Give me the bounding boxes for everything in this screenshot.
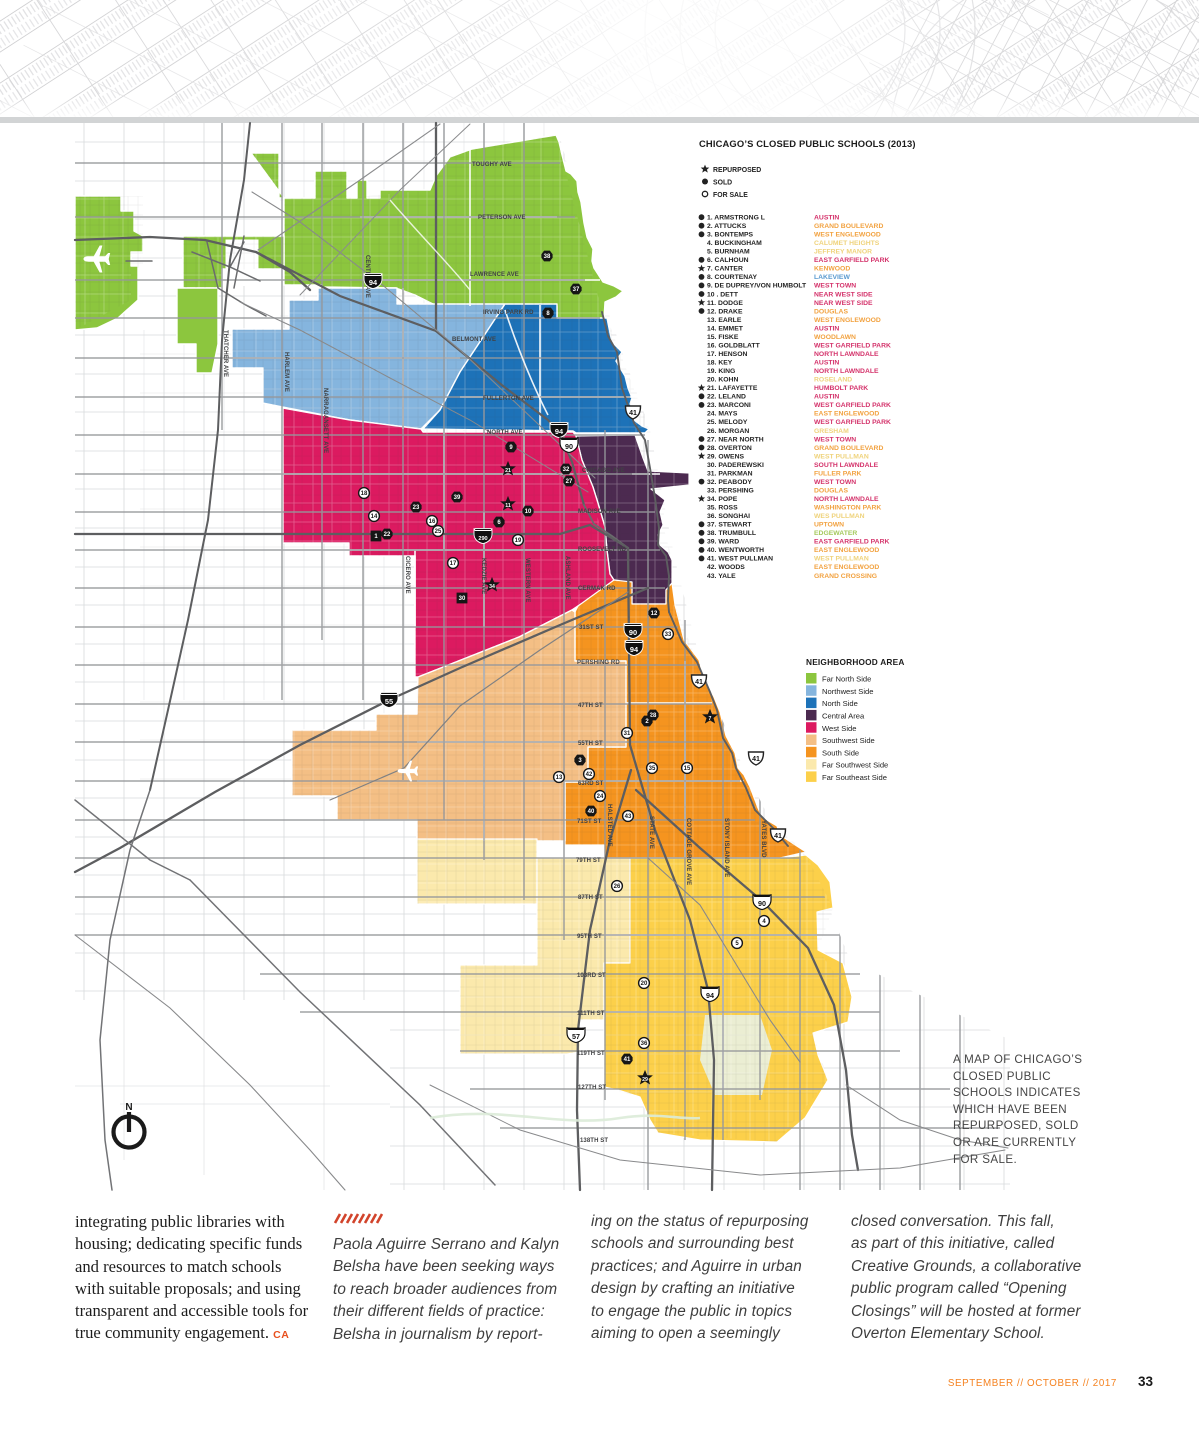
- svg-text:26: 26: [614, 884, 621, 890]
- svg-text:CHICAGO AVE: CHICAGO AVE: [582, 468, 625, 474]
- svg-text:HALSTED AVE: HALSTED AVE: [606, 804, 612, 847]
- svg-text:N: N: [125, 1102, 132, 1113]
- svg-text:9. DE DUPREY/VON HUMBOLT: 9. DE DUPREY/VON HUMBOLT: [707, 283, 807, 290]
- svg-text:GRAND BOULEVARD: GRAND BOULEVARD: [814, 223, 883, 230]
- svg-text:138TH ST: 138TH ST: [580, 1138, 608, 1144]
- svg-text:37. STEWART: 37. STEWART: [707, 522, 752, 529]
- svg-text:94: 94: [369, 278, 378, 287]
- svg-text:WEST GARFIELD PARK: WEST GARFIELD PARK: [814, 419, 891, 426]
- svg-text:55TH ST: 55TH ST: [578, 741, 603, 747]
- svg-text:Far Southeast Side: Far Southeast Side: [822, 773, 887, 782]
- svg-text:94: 94: [555, 427, 564, 436]
- svg-text:16. GOLDBLATT: 16. GOLDBLATT: [707, 342, 761, 349]
- svg-text:ROSELAND: ROSELAND: [814, 377, 852, 384]
- svg-text:ROOSEVELT RD: ROOSEVELT RD: [578, 547, 627, 553]
- svg-text:STATE AVE: STATE AVE: [648, 816, 654, 849]
- svg-text:14: 14: [371, 514, 378, 520]
- svg-text:WEST PULLMAN: WEST PULLMAN: [814, 453, 869, 460]
- svg-text:KENWOOD: KENWOOD: [814, 266, 850, 273]
- svg-text:REPURPOSED: REPURPOSED: [713, 167, 761, 174]
- svg-text:EDGEWATER: EDGEWATER: [814, 530, 857, 537]
- svg-text:14. EMMET: 14. EMMET: [707, 325, 744, 332]
- svg-text:Far North Side: Far North Side: [822, 675, 871, 684]
- svg-text:111TH ST: 111TH ST: [577, 1011, 605, 1017]
- svg-text:NEAR WEST SIDE: NEAR WEST SIDE: [814, 300, 873, 307]
- svg-text:41: 41: [774, 833, 782, 840]
- svg-text:NARRAGANSETT AVE: NARRAGANSETT AVE: [322, 388, 328, 453]
- svg-text:10 . DETT: 10 . DETT: [707, 291, 739, 298]
- svg-text:DOUGLAS: DOUGLAS: [814, 308, 848, 315]
- svg-text:FOR SALE: FOR SALE: [713, 192, 748, 199]
- svg-text:WEST PULLMAN: WEST PULLMAN: [814, 556, 869, 563]
- svg-text:15. FISKE: 15. FISKE: [707, 334, 739, 341]
- svg-text:13. EARLE: 13. EARLE: [707, 317, 742, 324]
- svg-text:AUSTIN: AUSTIN: [814, 394, 839, 401]
- svg-text:32: 32: [563, 467, 570, 473]
- svg-text:11: 11: [505, 503, 511, 509]
- svg-text:35. ROSS: 35. ROSS: [707, 505, 738, 512]
- svg-text:WEST TOWN: WEST TOWN: [814, 479, 856, 486]
- svg-text:West Side: West Side: [822, 724, 856, 733]
- svg-text:38: 38: [544, 254, 551, 260]
- svg-text:103RD ST: 103RD ST: [577, 973, 606, 979]
- svg-text:LAKEVIEW: LAKEVIEW: [814, 274, 850, 281]
- svg-text:29: 29: [642, 1077, 648, 1083]
- svg-text:NEAR WEST SIDE: NEAR WEST SIDE: [814, 291, 873, 298]
- svg-text:EAST GARFIELD PARK: EAST GARFIELD PARK: [814, 257, 889, 264]
- svg-text:290: 290: [478, 536, 487, 542]
- svg-text:23. MARCONI: 23. MARCONI: [707, 402, 751, 409]
- svg-text:CERMAK RD: CERMAK RD: [578, 586, 616, 592]
- svg-text:SCHOOLS INDICATES: SCHOOLS INDICATES: [953, 1086, 1081, 1099]
- svg-text:Far Southwest Side: Far Southwest Side: [822, 761, 888, 770]
- svg-text:18. KEY: 18. KEY: [707, 360, 733, 367]
- svg-text:31: 31: [624, 731, 631, 737]
- svg-text:ASHLAND AVE: ASHLAND AVE: [564, 556, 570, 600]
- svg-text:WESTERN AVE: WESTERN AVE: [524, 558, 530, 602]
- svg-text:13: 13: [556, 775, 563, 781]
- svg-text:SOUTH LAWNDALE: SOUTH LAWNDALE: [814, 462, 879, 469]
- svg-text:119TH ST: 119TH ST: [577, 1051, 605, 1057]
- svg-text:39: 39: [454, 495, 461, 501]
- svg-text:28. OVERTON: 28. OVERTON: [707, 445, 752, 452]
- svg-text:MADISON AVE: MADISON AVE: [578, 509, 621, 515]
- svg-text:30. PADEREWSKI: 30. PADEREWSKI: [707, 462, 764, 469]
- svg-text:33: 33: [665, 632, 672, 638]
- svg-text:JEFFREY MANOR: JEFFREY MANOR: [814, 249, 872, 256]
- svg-text:UPTOWN: UPTOWN: [814, 522, 844, 529]
- svg-text:39. WARD: 39. WARD: [707, 539, 739, 546]
- svg-text:WES PULLMAN: WES PULLMAN: [814, 513, 865, 520]
- svg-text:25: 25: [435, 529, 442, 535]
- svg-text:20. KOHN: 20. KOHN: [707, 377, 738, 384]
- svg-text:CICERO AVE: CICERO AVE: [404, 556, 410, 594]
- svg-text:IRVING PARK RD: IRVING PARK RD: [483, 310, 534, 316]
- svg-text:19. KING: 19. KING: [707, 368, 735, 375]
- svg-text:BELMONT AVE: BELMONT AVE: [452, 337, 496, 343]
- svg-text:36. SONGHAI: 36. SONGHAI: [707, 513, 750, 520]
- svg-text:Central Area: Central Area: [822, 712, 865, 721]
- svg-text:FULLER PARK: FULLER PARK: [814, 470, 862, 477]
- svg-text:63RD ST: 63RD ST: [578, 781, 604, 787]
- svg-text:34. POPE: 34. POPE: [707, 496, 738, 503]
- svg-text:PETERSON AVE: PETERSON AVE: [478, 215, 526, 221]
- svg-text:95TH ST: 95TH ST: [577, 934, 602, 940]
- svg-text:19: 19: [515, 538, 522, 544]
- svg-text:Northwest Side: Northwest Side: [822, 687, 874, 696]
- svg-text:WEST GARFIELD PARK: WEST GARFIELD PARK: [814, 402, 891, 409]
- svg-text:8. COURTENAY: 8. COURTENAY: [707, 274, 757, 281]
- svg-text:NORTH AVE: NORTH AVE: [487, 430, 523, 436]
- svg-text:87TH ST: 87TH ST: [578, 895, 603, 901]
- svg-text:OR ARE CURRENTLY: OR ARE CURRENTLY: [953, 1136, 1076, 1149]
- svg-text:FOR SALE.: FOR SALE.: [953, 1153, 1017, 1166]
- svg-text:94: 94: [706, 991, 714, 1000]
- svg-text:41: 41: [624, 1057, 631, 1063]
- svg-text:20: 20: [641, 981, 648, 987]
- svg-text:33. PERSHING: 33. PERSHING: [707, 488, 754, 495]
- svg-text:KEDZIE AVE: KEDZIE AVE: [480, 558, 486, 594]
- svg-text:2. ATTUCKS: 2. ATTUCKS: [707, 223, 747, 230]
- svg-text:79TH ST: 79TH ST: [576, 858, 601, 864]
- svg-text:EAST GARFIELD PARK: EAST GARFIELD PARK: [814, 539, 889, 546]
- svg-text:25. MELODY: 25. MELODY: [707, 419, 748, 426]
- svg-text:90: 90: [565, 442, 573, 451]
- svg-text:32. PEABODY: 32. PEABODY: [707, 479, 752, 486]
- svg-text:34: 34: [489, 584, 495, 590]
- svg-text:11. DODGE: 11. DODGE: [707, 300, 743, 307]
- svg-text:16: 16: [429, 519, 436, 525]
- svg-text:21. LAFAYETTE: 21. LAFAYETTE: [707, 385, 758, 392]
- svg-text:31. PARKMAN: 31. PARKMAN: [707, 470, 753, 477]
- svg-text:36: 36: [641, 1041, 648, 1047]
- svg-text:7: 7: [709, 716, 712, 722]
- svg-text:22. LELAND: 22. LELAND: [707, 394, 746, 401]
- svg-text:North Side: North Side: [822, 699, 858, 708]
- svg-text:SOLD: SOLD: [713, 180, 732, 187]
- svg-text:71ST ST: 71ST ST: [577, 819, 602, 825]
- svg-text:94: 94: [630, 645, 639, 654]
- svg-text:COTTAGE GROVE AVE: COTTAGE GROVE AVE: [685, 818, 691, 885]
- svg-text:HARLEM AVE: HARLEM AVE: [283, 352, 289, 392]
- svg-text:55: 55: [385, 697, 393, 706]
- svg-text:GRAND CROSSING: GRAND CROSSING: [814, 573, 877, 580]
- svg-text:3. BONTEMPS: 3. BONTEMPS: [707, 232, 754, 239]
- svg-text:CHICAGO’S CLOSED PUBLIC SCHOOL: CHICAGO’S CLOSED PUBLIC SCHOOLS (2013): [699, 138, 916, 149]
- svg-text:CLOSED PUBLIC: CLOSED PUBLIC: [953, 1070, 1051, 1083]
- svg-text:31ST ST: 31ST ST: [579, 625, 604, 631]
- svg-text:42: 42: [586, 772, 593, 778]
- svg-text:STONY ISLAND AVE: STONY ISLAND AVE: [723, 818, 729, 877]
- svg-text:WEST TOWN: WEST TOWN: [814, 283, 856, 290]
- svg-text:40. WENTWORTH: 40. WENTWORTH: [707, 547, 764, 554]
- svg-text:30: 30: [459, 596, 466, 602]
- svg-text:WEST GARFIELD PARK: WEST GARFIELD PARK: [814, 342, 891, 349]
- svg-text:1. ARMSTRONG L: 1. ARMSTRONG L: [707, 215, 765, 222]
- svg-text:40: 40: [588, 809, 595, 815]
- svg-text:South Side: South Side: [822, 748, 859, 757]
- svg-text:18: 18: [361, 491, 368, 497]
- svg-text:35: 35: [649, 766, 656, 772]
- svg-text:29. OWENS: 29. OWENS: [707, 453, 744, 460]
- svg-text:90: 90: [758, 899, 766, 908]
- svg-text:43. YALE: 43. YALE: [707, 573, 736, 580]
- svg-text:27. NEAR NORTH: 27. NEAR NORTH: [707, 436, 764, 443]
- svg-text:12. DRAKE: 12. DRAKE: [707, 308, 743, 315]
- svg-text:5. BURNHAM: 5. BURNHAM: [707, 249, 750, 256]
- svg-text:WEST ENGLEWOOD: WEST ENGLEWOOD: [814, 232, 881, 239]
- svg-text:90: 90: [629, 628, 637, 637]
- svg-text:EAST ENGLEWOOD: EAST ENGLEWOOD: [814, 564, 879, 571]
- svg-text:26. MORGAN: 26. MORGAN: [707, 428, 749, 435]
- svg-text:24: 24: [597, 794, 604, 800]
- svg-text:FULLERTON AVE: FULLERTON AVE: [483, 396, 534, 402]
- svg-text:EAST ENGLEWOOD: EAST ENGLEWOOD: [814, 547, 879, 554]
- svg-text:41: 41: [752, 756, 760, 763]
- svg-text:6. CALHOUN: 6. CALHOUN: [707, 257, 749, 264]
- svg-text:127TH ST: 127TH ST: [578, 1085, 606, 1091]
- svg-text:22: 22: [384, 532, 391, 538]
- svg-text:21: 21: [505, 468, 511, 474]
- svg-text:37: 37: [573, 287, 580, 293]
- svg-text:CALUMET HEIGHTS: CALUMET HEIGHTS: [814, 240, 880, 247]
- svg-text:DOUGLAS: DOUGLAS: [814, 488, 848, 495]
- svg-text:HUMBOLT PARK: HUMBOLT PARK: [814, 385, 868, 392]
- svg-text:AUSTIN: AUSTIN: [814, 215, 839, 222]
- svg-text:27: 27: [566, 479, 573, 485]
- svg-text:TOUGHY AVE: TOUGHY AVE: [472, 162, 512, 168]
- svg-text:A MAP OF CHICAGO’S: A MAP OF CHICAGO’S: [953, 1053, 1082, 1066]
- svg-text:NORTH LAWNDALE: NORTH LAWNDALE: [814, 368, 879, 375]
- svg-text:YATES BLVD: YATES BLVD: [760, 820, 766, 858]
- svg-text:23: 23: [413, 505, 420, 511]
- svg-text:38. TRUMBULL: 38. TRUMBULL: [707, 530, 756, 537]
- svg-text:17: 17: [450, 561, 457, 567]
- svg-text:AUSTIN: AUSTIN: [814, 360, 839, 367]
- svg-text:WOODLAWN: WOODLAWN: [814, 334, 856, 341]
- svg-text:15: 15: [684, 766, 691, 772]
- svg-text:43: 43: [625, 814, 632, 820]
- svg-text:7. CANTER: 7. CANTER: [707, 266, 743, 273]
- svg-text:41: 41: [629, 410, 637, 417]
- svg-text:NEIGHBORHOOD AREA: NEIGHBORHOOD AREA: [806, 657, 905, 667]
- svg-text:THATCHER AVE: THATCHER AVE: [222, 330, 228, 377]
- svg-text:42. WOODS: 42. WOODS: [707, 564, 745, 571]
- svg-text:Southwest Side: Southwest Side: [822, 736, 875, 745]
- svg-text:41: 41: [695, 679, 703, 686]
- svg-text:LAWRENCE AVE: LAWRENCE AVE: [470, 272, 519, 278]
- svg-text:GRAND BOULEVARD: GRAND BOULEVARD: [814, 445, 883, 452]
- svg-text:AUSTIN: AUSTIN: [814, 325, 839, 332]
- svg-text:NORTH LAWNDALE: NORTH LAWNDALE: [814, 351, 879, 358]
- svg-text:12: 12: [651, 611, 658, 617]
- svg-text:NORTH LAWNDALE: NORTH LAWNDALE: [814, 496, 879, 503]
- svg-text:4. BUCKINGHAM: 4. BUCKINGHAM: [707, 240, 762, 247]
- svg-text:57: 57: [572, 1032, 580, 1041]
- svg-text:WEST TOWN: WEST TOWN: [814, 436, 856, 443]
- svg-text:GRESHAM: GRESHAM: [814, 428, 849, 435]
- svg-text:WASHINGTON PARK: WASHINGTON PARK: [814, 505, 881, 512]
- svg-text:10: 10: [525, 509, 532, 515]
- svg-text:41. WEST PULLMAN: 41. WEST PULLMAN: [707, 556, 773, 563]
- svg-text:REPURPOSED, SOLD: REPURPOSED, SOLD: [953, 1119, 1079, 1132]
- svg-text:47TH ST: 47TH ST: [578, 703, 603, 709]
- svg-text:EAST ENGLEWOOD: EAST ENGLEWOOD: [814, 411, 879, 418]
- svg-text:PERSHING RD: PERSHING RD: [577, 660, 620, 666]
- svg-text:24. MAYS: 24. MAYS: [707, 411, 738, 418]
- svg-text:WHICH HAVE BEEN: WHICH HAVE BEEN: [953, 1103, 1067, 1116]
- svg-text:17. HENSON: 17. HENSON: [707, 351, 748, 358]
- svg-text:WEST ENGLEWOOD: WEST ENGLEWOOD: [814, 317, 881, 324]
